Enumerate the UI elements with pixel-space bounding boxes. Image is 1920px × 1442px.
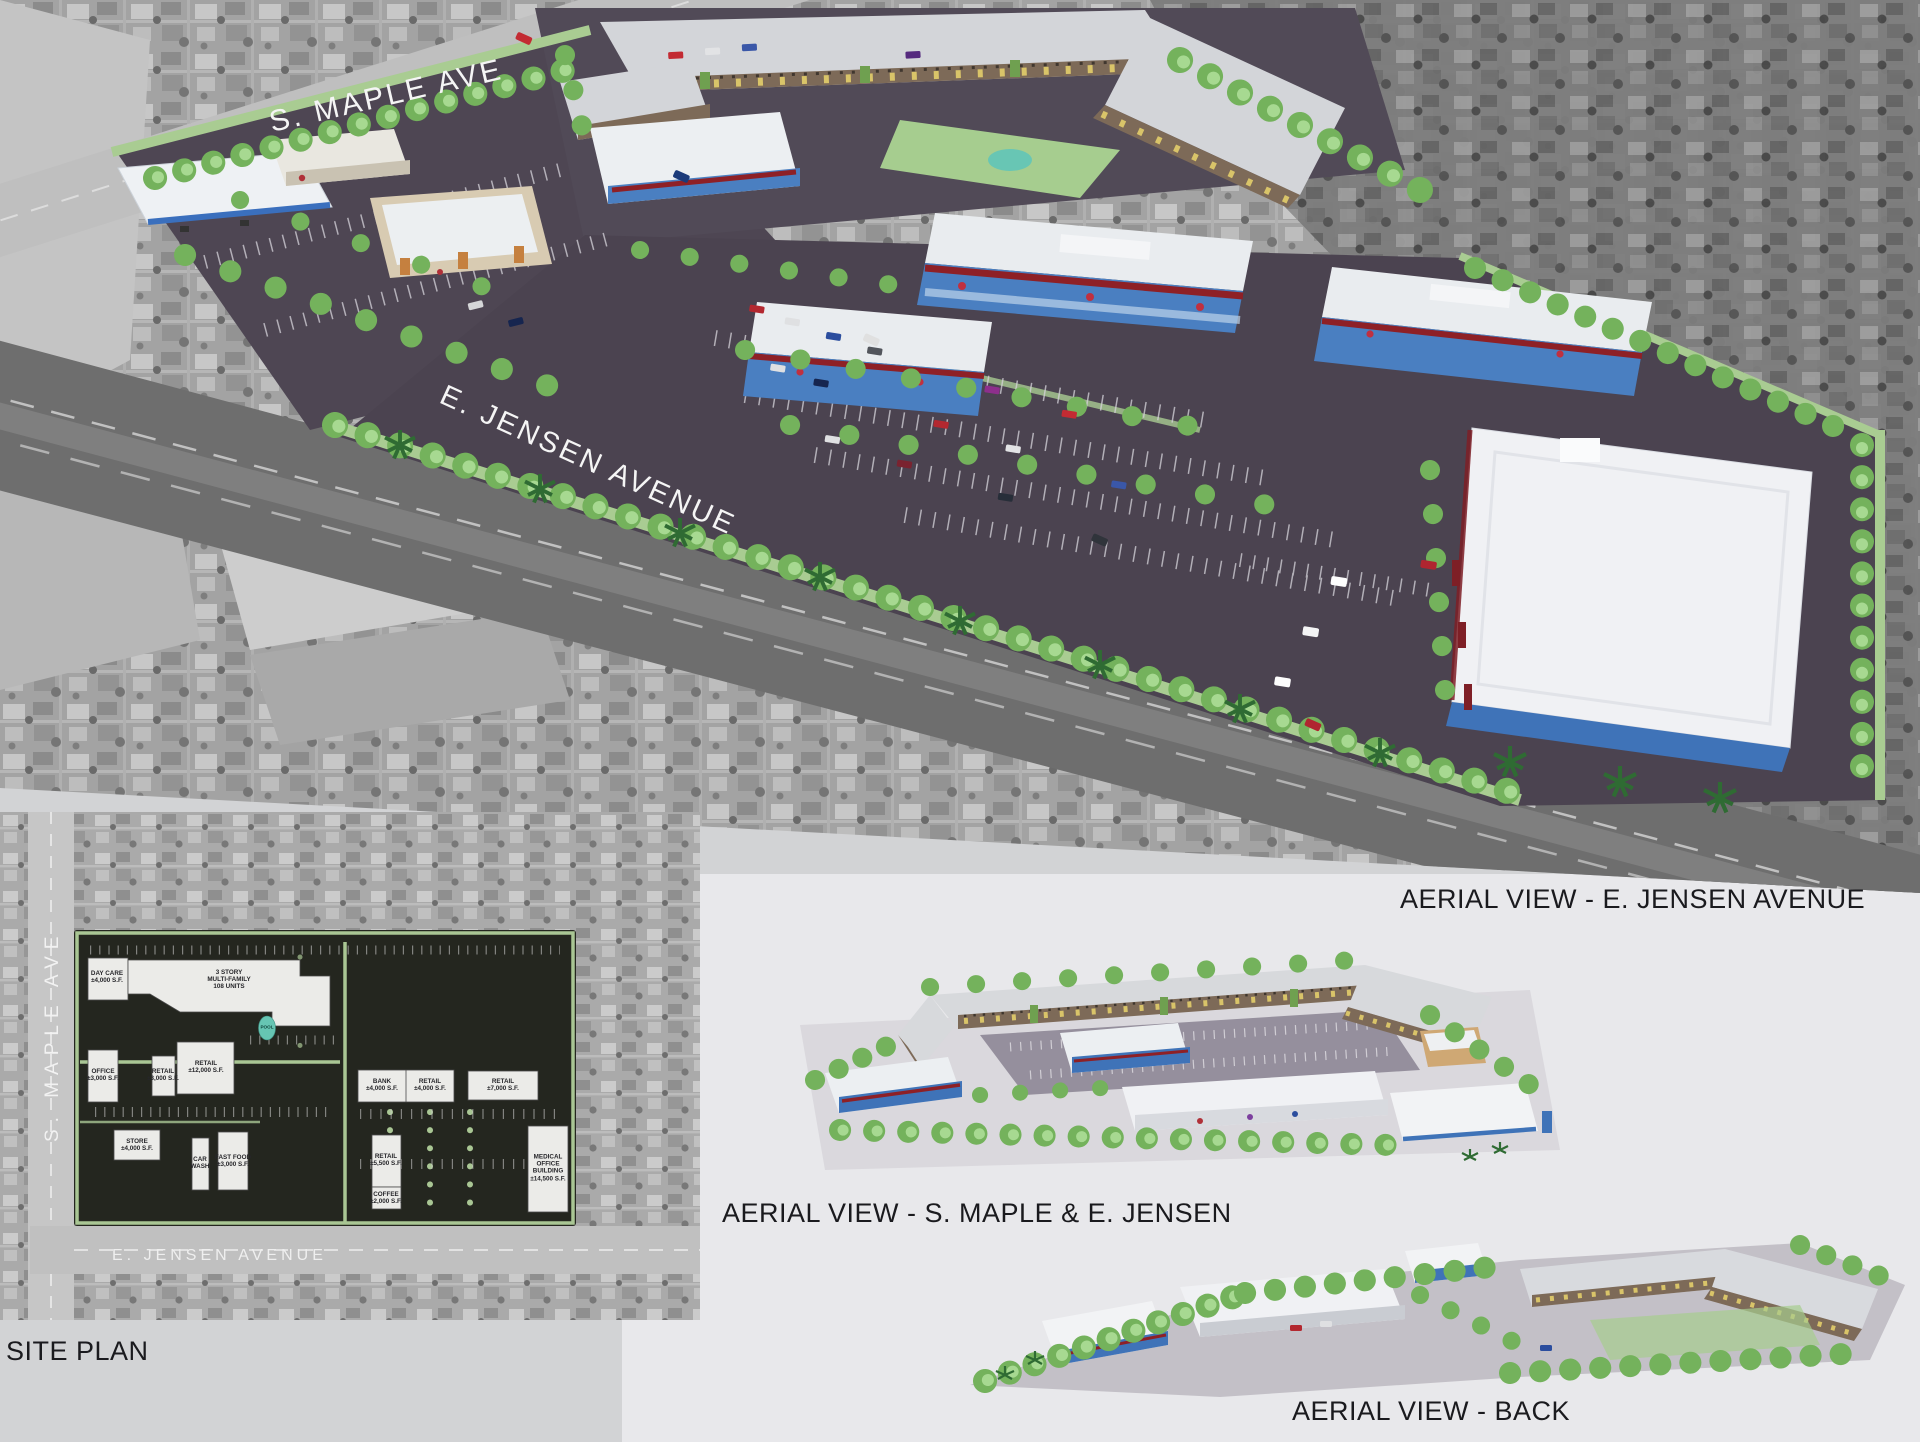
siteplan-maple-label: S. MAPLE AVE <box>42 930 63 1142</box>
label-fast-food: FAST FOOD ±3,000 S.F. <box>215 1154 251 1168</box>
maple-jensen-rendering <box>730 935 1570 1190</box>
big-store-building <box>1446 428 1812 772</box>
back-view-panel <box>820 1225 1920 1405</box>
label-coffee: COFFEE ±2,000 S.F. <box>370 1191 402 1205</box>
back-rendering <box>820 1225 1920 1405</box>
site-plan-drawing: S. MAPLE AVE E. JENSEN AVENUE <box>0 812 700 1320</box>
main-aerial-view-panel: S. MAPLE AVE E. JENSEN AVENUE <box>0 0 1920 905</box>
caption-site-plan: SITE PLAN <box>6 1336 149 1367</box>
site-plan-panel: S. MAPLE AVE E. JENSEN AVENUE DAY CARE ±… <box>0 812 700 1320</box>
label-car-wash: CAR WASH <box>191 1156 210 1170</box>
label-medical: MEDICAL OFFICE BUILDING ±14,500 S.F. <box>530 1154 565 1183</box>
siteplan-jensen-label: E. JENSEN AVENUE <box>112 1247 327 1264</box>
caption-maple-view: AERIAL VIEW - S. MAPLE & E. JENSEN <box>722 1198 1232 1229</box>
caption-main-view: AERIAL VIEW - E. JENSEN AVENUE <box>1400 884 1865 915</box>
label-retail-4000: RETAIL ±4,000 S.F. <box>414 1078 446 1092</box>
main-aerial-rendering: S. MAPLE AVE E. JENSEN AVENUE <box>0 0 1920 905</box>
label-bank: BANK ±4,000 S.F. <box>366 1078 398 1092</box>
retail-strip-b <box>743 302 992 416</box>
label-multifamily: 3 STORY MULTI-FAMILY 108 UNITS <box>207 969 250 991</box>
label-store: STORE ±4,000 S.F. <box>121 1138 153 1152</box>
label-day-care: DAY CARE ±4,000 S.F. <box>91 970 123 984</box>
label-office: OFFICE ±3,000 S.F. <box>87 1068 119 1082</box>
fast-food-building <box>370 186 552 278</box>
label-retail-7000: RETAIL ±7,000 S.F. <box>487 1078 519 1092</box>
pool <box>988 149 1032 171</box>
label-pool: POOL <box>260 1024 273 1029</box>
caption-back-view: AERIAL VIEW - BACK <box>1292 1396 1570 1427</box>
maple-jensen-view-panel <box>730 935 1570 1190</box>
label-retail-12000: RETAIL ±12,000 S.F. <box>188 1060 223 1074</box>
label-retail-3000: RETAIL ±3,000 S.F. <box>147 1068 179 1082</box>
presentation-board: S. MAPLE AVE E. JENSEN AVENUE <box>0 0 1920 1442</box>
label-retail-5500: RETAIL ±5,500 S.F. <box>370 1153 402 1167</box>
